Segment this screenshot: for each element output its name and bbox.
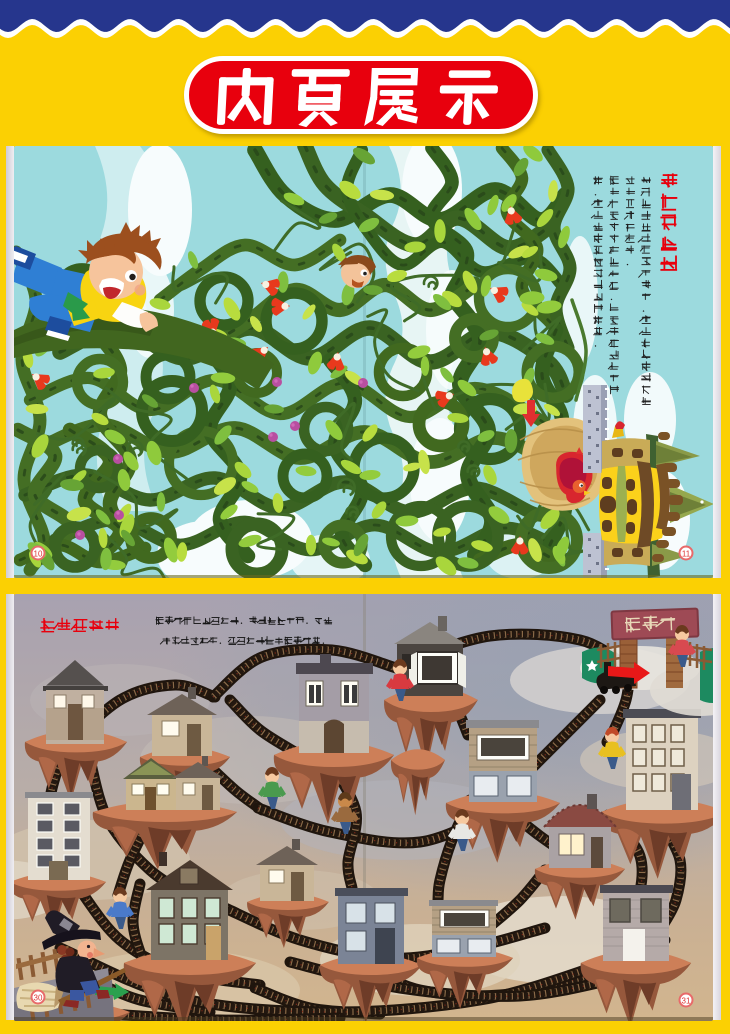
svg-text:11: 11 <box>682 550 691 559</box>
svg-text:31: 31 <box>682 997 691 1006</box>
svg-text:30: 30 <box>34 994 43 1003</box>
svg-text:10: 10 <box>34 550 43 559</box>
